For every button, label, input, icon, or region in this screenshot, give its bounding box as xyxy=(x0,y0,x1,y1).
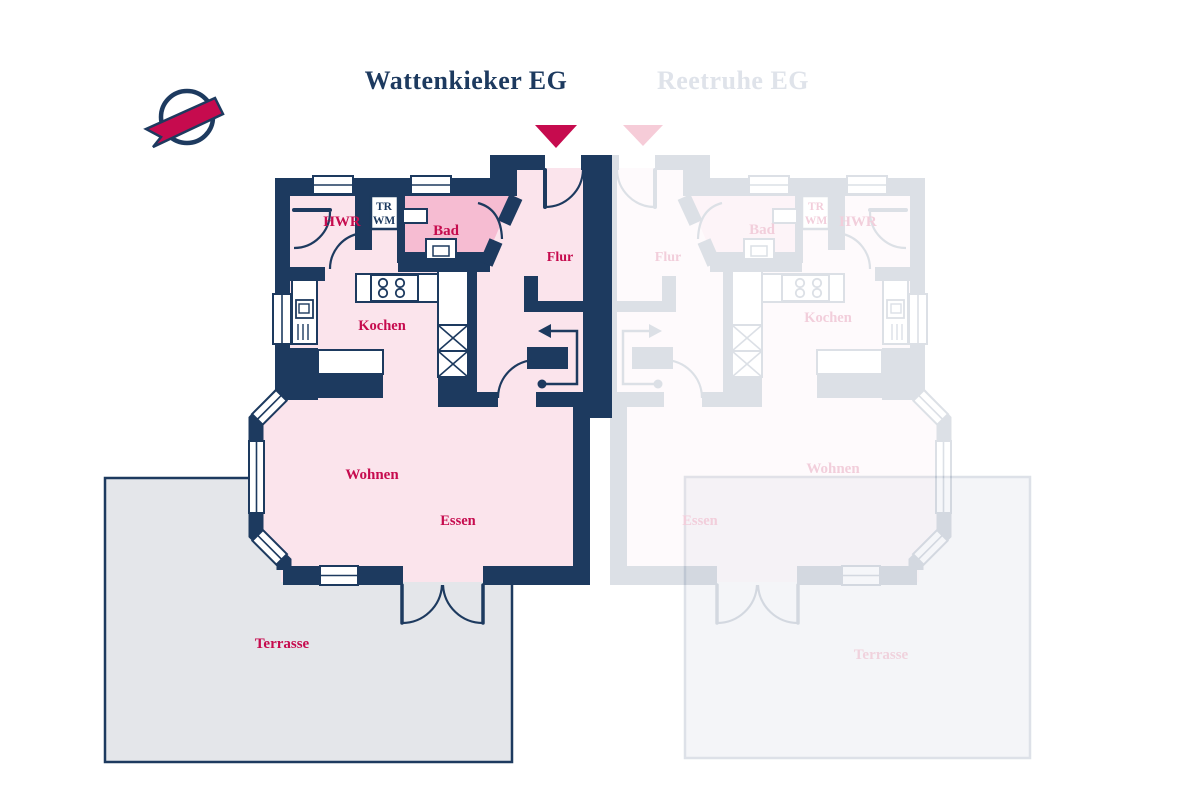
room-label-flur: Flur xyxy=(547,250,573,265)
appliance-label-ghost-tr: TR xyxy=(808,201,825,213)
entrance-marker-wattenkieker xyxy=(535,125,577,148)
appliance-label-wm: WM xyxy=(373,215,396,227)
unit-wattenkieker xyxy=(249,155,612,623)
brand-logo-icon xyxy=(146,91,223,147)
room-label-ghost-wohnen: Wohnen xyxy=(806,461,860,477)
room-label-ghost-bad: Bad xyxy=(749,222,776,238)
room-label-bad: Bad xyxy=(433,223,460,239)
room-label-ghost-kochen: Kochen xyxy=(804,310,852,326)
plan-title-wattenkieker: Wattenkieker EG xyxy=(331,66,601,96)
room-label-wohnen: Wohnen xyxy=(345,467,399,483)
appliance-label-tr: TR xyxy=(376,201,393,213)
appliance-label-ghost-wm: WM xyxy=(805,215,828,227)
floorplan-canvas: HWRBadFlurKochenWohnenEssenTRWMFlurBadHW… xyxy=(0,0,1200,800)
room-label-essen: Essen xyxy=(440,513,475,529)
room-label-hwr: HWR xyxy=(323,214,361,230)
plan-title-reetruhe: Reetruhe EG xyxy=(598,66,868,96)
terrace-label-reetruhe: Terrasse xyxy=(854,647,909,663)
room-label-ghost-essen: Essen xyxy=(682,513,717,529)
room-label-ghost-hwr: HWR xyxy=(839,214,877,230)
room-label-ghost-flur: Flur xyxy=(655,250,681,265)
floorplan-page: HWRBadFlurKochenWohnenEssenTRWMFlurBadHW… xyxy=(0,0,1200,800)
entrance-marker-reetruhe xyxy=(623,125,663,146)
room-label-kochen: Kochen xyxy=(358,318,406,334)
terrace-label-wattenkieker: Terrasse xyxy=(255,636,310,652)
